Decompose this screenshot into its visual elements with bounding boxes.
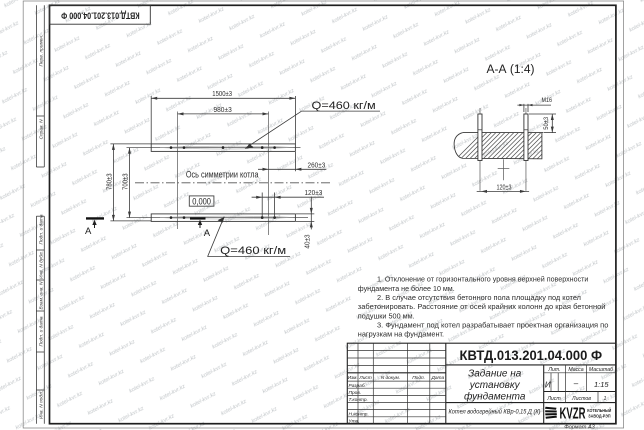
svg-text:Разраб.: Разраб. <box>349 383 366 389</box>
svg-text:Пров.: Пров. <box>349 390 362 396</box>
svg-text:Взам. инв. N: Взам. инв. N <box>38 281 44 309</box>
svg-text:780±3: 780±3 <box>107 173 114 190</box>
svg-text:И: И <box>545 381 551 390</box>
svg-text:M16: M16 <box>542 97 553 104</box>
svg-text:нагрузкам на фундамент.: нагрузкам на фундамент. <box>358 330 444 339</box>
svg-text:Q=460 кг/м: Q=460 кг/м <box>312 100 376 112</box>
svg-text:КОТЕЛЬНЫЙ: КОТЕЛЬНЫЙ <box>587 406 611 413</box>
svg-text:Перв. примен.: Перв. примен. <box>38 35 44 67</box>
svg-text:Инв. N дубл.: Инв. N дубл. <box>38 251 44 279</box>
svg-text:КВТД.013.201.04.000 Ф: КВТД.013.201.04.000 Ф <box>61 11 140 21</box>
svg-text:KVZR: KVZR <box>560 405 586 422</box>
svg-text:Лист: Лист <box>546 396 561 402</box>
svg-text:2. В случае отсутствия бетонно: 2. В случае отсутствия бетонного пола пл… <box>377 293 581 302</box>
svg-text:Инв. N подл.: Инв. N подл. <box>38 391 44 419</box>
svg-text:Ось симметрии котла: Ось симметрии котла <box>186 170 259 181</box>
svg-text:Изм.: Изм. <box>348 375 358 381</box>
svg-text:А-А (1:4): А-А (1:4) <box>487 64 535 76</box>
svg-text:Н.контр.: Н.контр. <box>349 411 369 417</box>
svg-text:40±3: 40±3 <box>305 234 312 248</box>
svg-text:120±3: 120±3 <box>304 190 322 197</box>
svg-text:забетонировать. Расстояние от: забетонировать. Расстояние от осей крайн… <box>358 302 606 311</box>
svg-text:Подп. и дата: Подп. и дата <box>38 214 44 244</box>
svg-text:ЗАВОД-РЭП: ЗАВОД-РЭП <box>588 413 610 418</box>
svg-text:Котел водогрейный КВр-0,15 Д (: Котел водогрейный КВр-0,15 Д (К) <box>449 408 541 416</box>
svg-text:Подп.: Подп. <box>412 375 425 381</box>
svg-text:1500±3: 1500±3 <box>212 91 232 98</box>
svg-text:1: 1 <box>604 396 607 402</box>
svg-text:Листов: Листов <box>571 396 591 402</box>
svg-text:Формат А3: Формат А3 <box>564 424 595 430</box>
svg-text:фундамента не более 10 мм.: фундамента не более 10 мм. <box>358 284 455 293</box>
svg-text:1:15: 1:15 <box>594 380 609 389</box>
svg-text:Q=460 кг/м: Q=460 кг/м <box>220 245 286 257</box>
svg-text:120±3: 120±3 <box>496 185 511 192</box>
svg-text:Дата: Дата <box>430 375 444 381</box>
svg-text:фундамента: фундамента <box>464 391 526 403</box>
svg-text:–: – <box>574 379 579 388</box>
svg-text:N докум.: N докум. <box>381 375 400 381</box>
svg-text:Масса: Масса <box>568 367 583 373</box>
svg-text:КВТД.013.201.04.000 Ф: КВТД.013.201.04.000 Ф <box>460 347 603 363</box>
svg-text:Утв.: Утв. <box>349 418 360 424</box>
svg-text:Задание на: Задание на <box>468 368 522 379</box>
svg-text:700±3: 700±3 <box>123 173 130 190</box>
svg-text:Лист: Лист <box>358 375 371 381</box>
svg-text:подушки 500 мм.: подушки 500 мм. <box>358 311 415 320</box>
svg-text:Масштаб: Масштаб <box>589 367 614 373</box>
svg-text:Подп. и дата: Подп. и дата <box>38 316 44 346</box>
svg-text:установку: установку <box>469 380 521 391</box>
svg-text:980±3: 980±3 <box>213 107 231 114</box>
svg-text:А: А <box>204 228 211 239</box>
svg-text:0,000: 0,000 <box>192 196 211 206</box>
svg-text:50±3: 50±3 <box>543 117 550 130</box>
svg-text:Лит.: Лит. <box>547 367 560 373</box>
svg-text:1. Отклонение от горизонтально: 1. Отклонение от горизонтального уровня … <box>377 275 588 284</box>
svg-text:Т.контр.: Т.контр. <box>349 397 368 403</box>
svg-text:А: А <box>85 226 92 237</box>
svg-text:260±3: 260±3 <box>308 163 326 170</box>
svg-text:Справ. N: Справ. N <box>38 119 44 140</box>
svg-text:3. Фундамент под котел разраба: 3. Фундамент под котел разрабатывает про… <box>377 321 608 330</box>
